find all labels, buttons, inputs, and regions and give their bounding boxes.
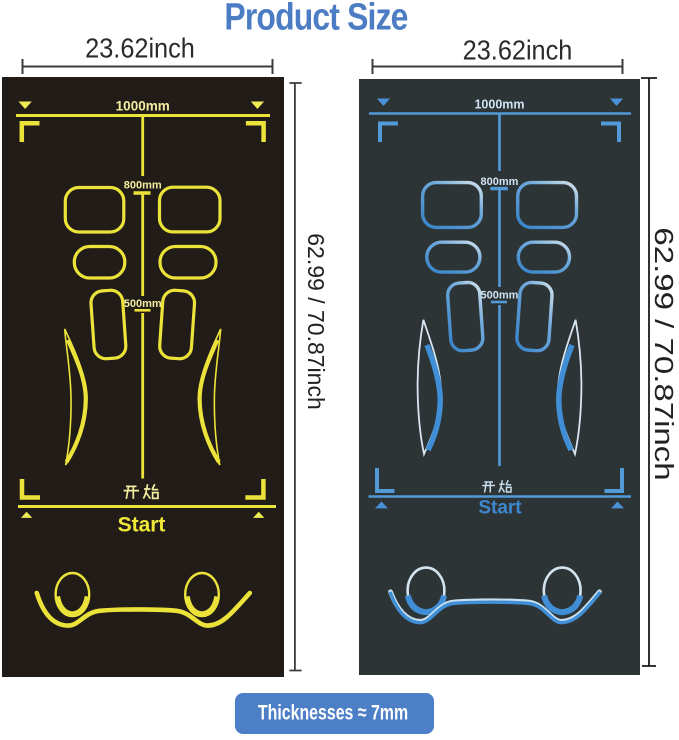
svg-text:Thicknesses ≈ 7mm: Thicknesses ≈ 7mm: [258, 701, 408, 725]
svg-text:62.99 / 70.87inch: 62.99 / 70.87inch: [649, 227, 678, 480]
svg-text:23.62inch: 23.62inch: [463, 35, 573, 66]
svg-text:Start: Start: [118, 514, 166, 537]
svg-text:500mm: 500mm: [124, 298, 162, 310]
svg-text:Product Size: Product Size: [224, 0, 408, 38]
svg-text:500mm: 500mm: [481, 290, 519, 302]
svg-text:1000mm: 1000mm: [116, 99, 170, 114]
svg-text:800mm: 800mm: [124, 180, 162, 192]
svg-text:Start: Start: [478, 498, 522, 519]
svg-text:800mm: 800mm: [481, 176, 519, 188]
svg-text:62.99 / 70.87inch: 62.99 / 70.87inch: [303, 233, 329, 409]
svg-text:23.62inch: 23.62inch: [85, 33, 195, 64]
svg-text:1000mm: 1000mm: [474, 98, 524, 112]
